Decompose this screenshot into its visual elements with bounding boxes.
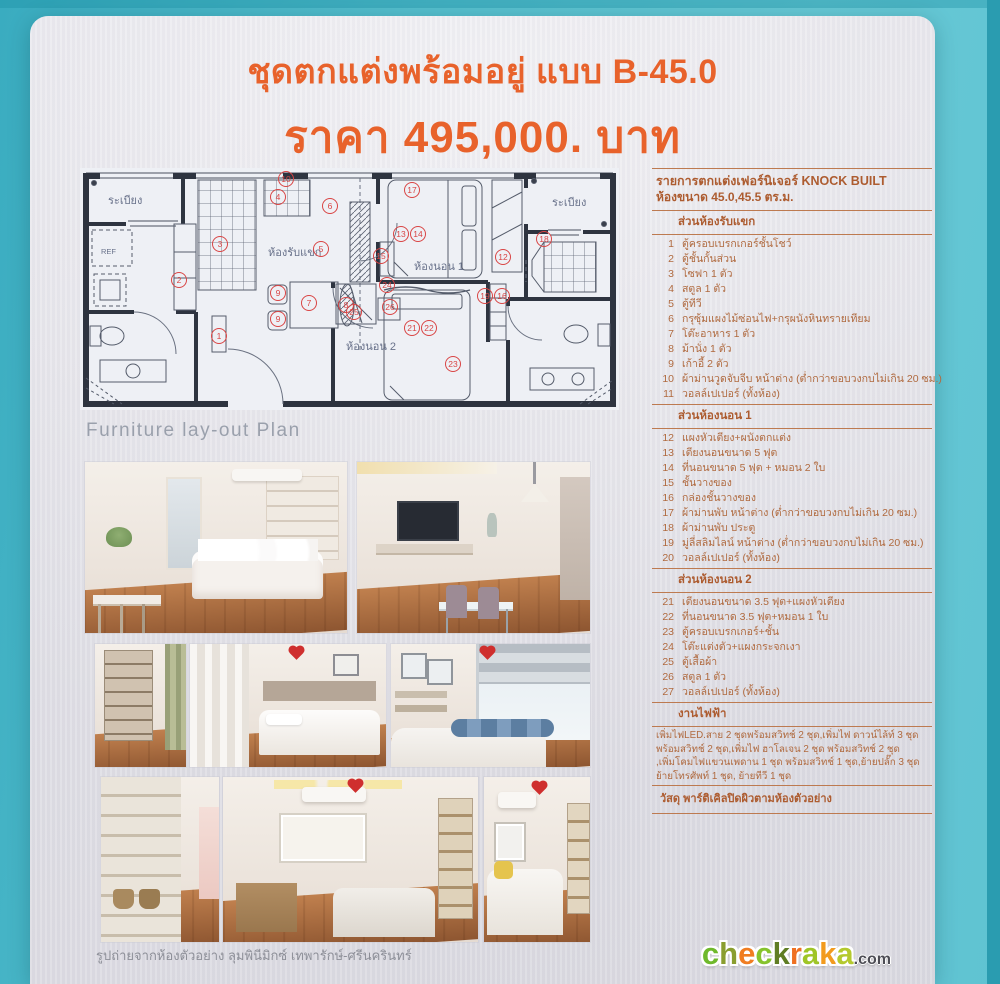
item-number: 20 xyxy=(652,551,674,566)
checkraka-watermark: checkraka.com xyxy=(702,936,891,972)
marker-number-17: 17 xyxy=(407,185,417,195)
electrical-work-line: ย้ายโทรศัพท์ 1 ชุด, ย้ายทีวี 1 ชุด xyxy=(652,770,932,784)
heart-balloon-icon xyxy=(290,647,303,660)
item-number: 17 xyxy=(652,506,674,521)
marker-number-3: 3 xyxy=(218,239,223,249)
section-title: ส่วนห้องนอน 1 xyxy=(652,407,932,426)
list-item: 18ผ้าม่านพับ ประตู xyxy=(652,521,932,536)
item-text: ที่นอนขนาด 3.5 ฟุต+หมอน 1 ใบ xyxy=(682,610,828,625)
item-text: สตูล 1 ตัว xyxy=(682,670,726,685)
divider xyxy=(652,726,932,727)
picture-frame-shape xyxy=(401,653,427,679)
item-number: 13 xyxy=(652,446,674,461)
pillows-shape xyxy=(451,719,554,737)
marker-number-22: 22 xyxy=(424,323,434,333)
photo-closet-partition xyxy=(95,644,186,767)
photo-bedroom2-overview xyxy=(223,777,478,942)
item-text: ตู้ทีวี xyxy=(682,297,702,312)
item-text: แผงหัวเตียง+ผนังตกแต่ง xyxy=(682,431,791,446)
marker-number-12: 12 xyxy=(498,252,508,262)
marker-number-19: 19 xyxy=(480,291,490,301)
divider xyxy=(652,592,932,593)
item-number: 22 xyxy=(652,610,674,625)
item-text: มู่ลี่สลิมไลน์ หน้าต่าง (ต่ำกว่าขอบวงกบไ… xyxy=(682,536,924,551)
marker-number-9: 9 xyxy=(276,314,281,324)
furniture-list-panel: รายการตกแต่งเฟอร์นิเจอร์ KNOCK BUILT ห้อ… xyxy=(652,166,932,816)
tv-console-shape xyxy=(376,544,474,555)
electrical-work-line: เพิ่มไฟLED.สาย 2 ชุดพร้อมสวิทช์ 2 ชุด,เพ… xyxy=(652,729,932,743)
electrical-work-line: พร้อมสวิทช์ 2 ชุด,เพิ่มไฟ ฮาโลเจน 2 ชุด … xyxy=(652,743,932,757)
list-item: 26สตูล 1 ตัว xyxy=(652,670,932,685)
photo-bedroom1-bed xyxy=(190,644,386,767)
item-number: 11 xyxy=(652,387,674,402)
marker-number-18: 18 xyxy=(539,234,549,244)
item-number: 5 xyxy=(652,297,674,312)
bed-shape xyxy=(487,869,563,935)
marker-number-21: 21 xyxy=(407,323,417,333)
divider xyxy=(652,168,932,169)
logo-letter: k xyxy=(819,936,836,971)
logo-letter: r xyxy=(790,936,802,971)
photo-bedroom2-bed xyxy=(484,777,590,942)
list-item: 3โซฟา 1 ตัว xyxy=(652,267,932,282)
background-right-band xyxy=(987,0,1000,984)
divider xyxy=(652,568,932,569)
marker-number-23: 23 xyxy=(448,359,458,369)
divider xyxy=(652,785,932,786)
hallway-shape xyxy=(560,477,590,600)
item-text: ตู้ครอบเบรกเกอร์+ชั้น xyxy=(682,625,779,640)
section-title: งานไฟฟ้า xyxy=(652,705,932,724)
marker-number-26: 26 xyxy=(385,302,395,312)
sofa-shape xyxy=(192,551,323,599)
label-bedroom-2: ห้องนอน 2 xyxy=(346,341,396,353)
divider xyxy=(652,702,932,703)
item-number: 21 xyxy=(652,595,674,610)
item-text: ตู้เสื้อผ้า xyxy=(682,655,717,670)
item-text: วอลล์เปเปอร์ (ทั้งห้อง) xyxy=(682,387,780,402)
list-item: 12แผงหัวเตียง+ผนังตกแต่ง xyxy=(652,431,932,446)
list-item: 21เตียงนอนขนาด 3.5 ฟุต+แผงหัวเตียง xyxy=(652,595,932,610)
air-conditioner-shape xyxy=(498,792,536,809)
list-item: 15ชั้นวางของ xyxy=(652,476,932,491)
vase-shape xyxy=(487,513,496,537)
list-header-line2: ห้องขนาด 45.0,45.5 ตร.ม. xyxy=(652,190,932,208)
list-item: 9เก้าอี้ 2 ตัว xyxy=(652,357,932,372)
item-number: 1 xyxy=(652,237,674,252)
photo-bedroom1-window xyxy=(391,644,590,767)
item-number: 26 xyxy=(652,670,674,685)
section-title: ส่วนห้องรับแขก xyxy=(652,213,932,232)
plan-caption: Furniture lay-out Plan xyxy=(86,420,301,442)
logo-letter: a xyxy=(836,936,853,971)
list-item: 27วอลล์เปเปอร์ (ทั้งห้อง) xyxy=(652,685,932,700)
item-text: ชั้นวางของ xyxy=(682,476,732,491)
bed-shape xyxy=(333,888,435,938)
item-number: 14 xyxy=(652,461,674,476)
marker-number-25: 25 xyxy=(349,307,359,317)
divider xyxy=(652,813,932,814)
photo-living-tv xyxy=(357,462,590,633)
marker-number-7: 7 xyxy=(307,298,312,308)
curtain-shape xyxy=(165,644,186,750)
item-number: 19 xyxy=(652,536,674,551)
marker-number-6: 6 xyxy=(328,201,333,211)
marker-number-4: 4 xyxy=(276,192,281,202)
marker-number-1: 1 xyxy=(217,331,222,341)
list-item: 7โต๊ะอาหาร 1 ตัว xyxy=(652,327,932,342)
poster-title: ชุดตกแต่งพร้อมอยู่ แบบ B-45.0 xyxy=(30,44,935,98)
item-number: 8 xyxy=(652,342,674,357)
bed-shape xyxy=(259,710,381,754)
window-shape xyxy=(279,813,367,863)
dining-table-shape xyxy=(93,595,161,606)
yellow-pillow-shape xyxy=(494,861,513,879)
divider xyxy=(652,428,932,429)
chair-shape xyxy=(478,587,499,619)
item-text: กล่องชั้นวางของ xyxy=(682,491,756,506)
photo-caption: รูปถ่ายจากห้องตัวอย่าง ลุมพินีมิกซ์ เทพา… xyxy=(96,945,412,966)
item-text: โต๊ะแต่งตัว+แผงกระจกเงา xyxy=(682,640,800,655)
material-note: วัสดุ พาร์ติเคิลปิดผิวตามห้องตัวอย่าง xyxy=(652,788,932,811)
list-item: 13เตียงนอนขนาด 5 ฟุต xyxy=(652,446,932,461)
air-conditioner-shape xyxy=(232,469,303,481)
logo-letter: e xyxy=(738,936,755,971)
list-item: 24โต๊ะแต่งตัว+แผงกระจกเงา xyxy=(652,640,932,655)
ceiling-light-strip xyxy=(357,462,497,474)
divider xyxy=(652,234,932,235)
item-number: 2 xyxy=(652,252,674,267)
chair-shape xyxy=(446,585,467,617)
plant-shape xyxy=(106,527,132,548)
marker-number-2: 2 xyxy=(177,275,182,285)
item-text: ผ้าม่านพับ ประตู xyxy=(682,521,755,536)
list-item: 10ผ้าม่านวูดจับจีบ หน้าต่าง (ต่ำกว่าขอบว… xyxy=(652,372,932,387)
item-text: โต๊ะอาหาร 1 ตัว xyxy=(682,327,755,342)
shelf-shape xyxy=(438,798,473,919)
list-item: 17ผ้าม่านพับ หน้าต่าง (ต่ำกว่าขอบวงกบไม่… xyxy=(652,506,932,521)
baskets-shape xyxy=(113,889,134,909)
item-number: 23 xyxy=(652,625,674,640)
item-number: 4 xyxy=(652,282,674,297)
item-number: 6 xyxy=(652,312,674,327)
list-header-line1: รายการตกแต่งเฟอร์นิเจอร์ KNOCK BUILT xyxy=(652,171,932,190)
marker-number-16: 16 xyxy=(497,291,507,301)
item-text: เตียงนอนขนาด 3.5 ฟุต+แผงหัวเตียง xyxy=(682,595,845,610)
marker-number-13: 13 xyxy=(396,229,406,239)
curtain-shape xyxy=(190,644,249,767)
item-number: 24 xyxy=(652,640,674,655)
item-number: 3 xyxy=(652,267,674,282)
shelf-partition-shape xyxy=(104,650,153,741)
window-shape xyxy=(494,822,527,862)
item-text: โซฟา 1 ตัว xyxy=(682,267,733,282)
item-text: ผ้าม่านวูดจับจีบ หน้าต่าง (ต่ำกว่าขอบวงก… xyxy=(682,372,942,387)
pink-room-glimpse xyxy=(199,807,219,899)
list-item: 1ตู้ครอบเบรกเกอร์ชั้นโชว์ xyxy=(652,237,932,252)
floor-plan: ระเบียง ห้องรับแขก ห้องนอน 1 ระเบียง ห้อ… xyxy=(78,164,623,414)
list-item: 19มู่ลี่สลิมไลน์ หน้าต่าง (ต่ำกว่าขอบวงก… xyxy=(652,536,932,551)
list-item: 4สตูล 1 ตัว xyxy=(652,282,932,297)
logo-tld: .com xyxy=(854,951,891,968)
marker-number-10: 10 xyxy=(281,174,291,184)
list-item: 6กรุซุ้มแผงไม้ซ่อนไฟ+กรุผนังหินทรายเทียม xyxy=(652,312,932,327)
furnished-unit-poster: ชุดตกแต่งพร้อมอยู่ แบบ B-45.0 ราคา 495,0… xyxy=(30,16,935,984)
item-text: ตู้ชั้นกั้นส่วน xyxy=(682,252,736,267)
divider xyxy=(652,210,932,211)
item-text: วอลล์เปเปอร์ (ทั้งห้อง) xyxy=(682,551,780,566)
item-text: กรุซุ้มแผงไม้ซ่อนไฟ+กรุผนังหินทรายเทียม xyxy=(682,312,871,327)
divider xyxy=(652,404,932,405)
electrical-work-line: ,เพิ่มโคมไฟแขวนเพดาน 1 ชุด พร้อมสวิทช์ 1… xyxy=(652,756,932,770)
label-balcony-left: ระเบียง xyxy=(108,194,142,207)
wardrobe-shelf-shape xyxy=(101,777,181,942)
logo-letter: a xyxy=(802,936,819,971)
label-balcony-right: ระเบียง xyxy=(552,196,586,209)
item-text: เก้าอี้ 2 ตัว xyxy=(682,357,729,372)
list-item: 25ตู้เสื้อผ้า xyxy=(652,655,932,670)
item-number: 16 xyxy=(652,491,674,506)
pendant-lamp-shape xyxy=(533,462,536,484)
item-number: 25 xyxy=(652,655,674,670)
list-item: 23ตู้ครอบเบรกเกอร์+ชั้น xyxy=(652,625,932,640)
photo-wardrobe-storage xyxy=(101,777,219,942)
item-number: 15 xyxy=(652,476,674,491)
item-number: 9 xyxy=(652,357,674,372)
list-item: 20วอลล์เปเปอร์ (ทั้งห้อง) xyxy=(652,551,932,566)
marker-number-24: 24 xyxy=(382,280,392,290)
shelf-shape xyxy=(567,803,590,914)
list-item: 2ตู้ชั้นกั้นส่วน xyxy=(652,252,932,267)
item-number: 18 xyxy=(652,521,674,536)
item-number: 12 xyxy=(652,431,674,446)
tv-shape xyxy=(397,501,459,541)
logo-letter: c xyxy=(755,936,772,971)
item-number: 10 xyxy=(652,372,674,387)
list-item: 16กล่องชั้นวางของ xyxy=(652,491,932,506)
list-item: 22ที่นอนขนาด 3.5 ฟุต+หมอน 1 ใบ xyxy=(652,610,932,625)
item-text: ผ้าม่านพับ หน้าต่าง (ต่ำกว่าขอบวงกบไม่เก… xyxy=(682,506,917,521)
marker-number-15: 15 xyxy=(376,251,386,261)
item-number: 7 xyxy=(652,327,674,342)
headboard-shape xyxy=(263,681,377,701)
marker-number-9: 9 xyxy=(276,288,281,298)
marker-number-5: 5 xyxy=(319,244,324,254)
logo-letter: c xyxy=(702,936,719,971)
logo-letter: k xyxy=(773,936,790,971)
marker-number-14: 14 xyxy=(413,229,423,239)
item-text: ตู้ครอบเบรกเกอร์ชั้นโชว์ xyxy=(682,237,792,252)
item-text: ม้านั่ง 1 ตัว xyxy=(682,342,732,357)
label-fridge: REF xyxy=(101,247,116,256)
list-item: 5ตู้ทีวี xyxy=(652,297,932,312)
section-title: ส่วนห้องนอน 2 xyxy=(652,571,932,590)
item-number: 27 xyxy=(652,685,674,700)
label-bedroom-1: ห้องนอน 1 xyxy=(414,261,464,273)
photo-living-dining xyxy=(85,462,347,633)
list-item: 14ที่นอนขนาด 5 ฟุต + หมอน 2 ใบ xyxy=(652,461,932,476)
item-text: สตูล 1 ตัว xyxy=(682,282,726,297)
list-sections: ส่วนห้องรับแขก1ตู้ครอบเบรกเกอร์ชั้นโชว์2… xyxy=(652,213,932,786)
poster-photo-scene: ชุดตกแต่งพร้อมอยู่ แบบ B-45.0 ราคา 495,0… xyxy=(0,0,1000,984)
background-top-shade xyxy=(0,0,1000,8)
picture-frame-shape xyxy=(333,654,359,676)
list-item: 11วอลล์เปเปอร์ (ทั้งห้อง) xyxy=(652,387,932,402)
poster-price: ราคา 495,000. บาท xyxy=(30,102,935,172)
item-text: ที่นอนขนาด 5 ฟุต + หมอน 2 ใบ xyxy=(682,461,825,476)
item-text: วอลล์เปเปอร์ (ทั้งห้อง) xyxy=(682,685,780,700)
dressing-table-shape xyxy=(236,883,297,933)
shelf-shape xyxy=(395,691,447,698)
logo-letter: h xyxy=(719,936,738,971)
item-text: เตียงนอนขนาด 5 ฟุต xyxy=(682,446,777,461)
list-item: 8ม้านั่ง 1 ตัว xyxy=(652,342,932,357)
